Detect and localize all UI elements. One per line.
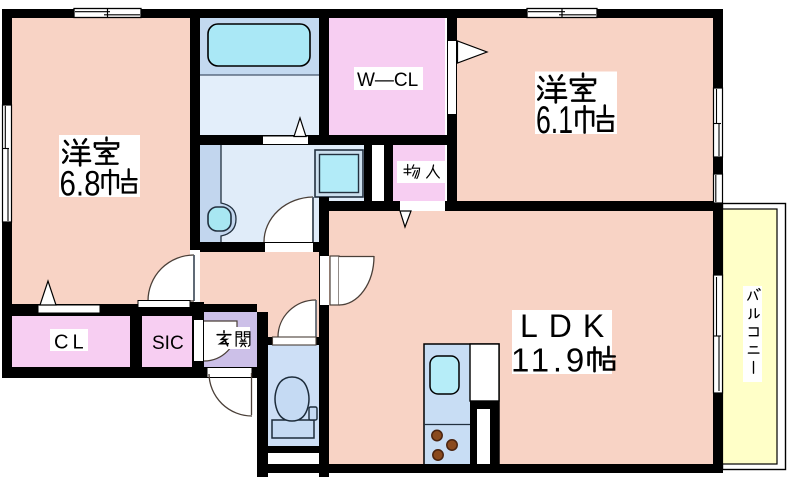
svg-text:6.8: 6.8	[60, 165, 101, 204]
svg-text:11.9: 11.9	[511, 342, 588, 379]
svg-text:W—CL: W—CL	[357, 70, 418, 91]
svg-text:LDK: LDK	[520, 308, 615, 344]
svg-text:CL: CL	[54, 332, 88, 354]
svg-text:6.1: 6.1	[536, 99, 573, 142]
svg-text:SIC: SIC	[152, 333, 184, 354]
